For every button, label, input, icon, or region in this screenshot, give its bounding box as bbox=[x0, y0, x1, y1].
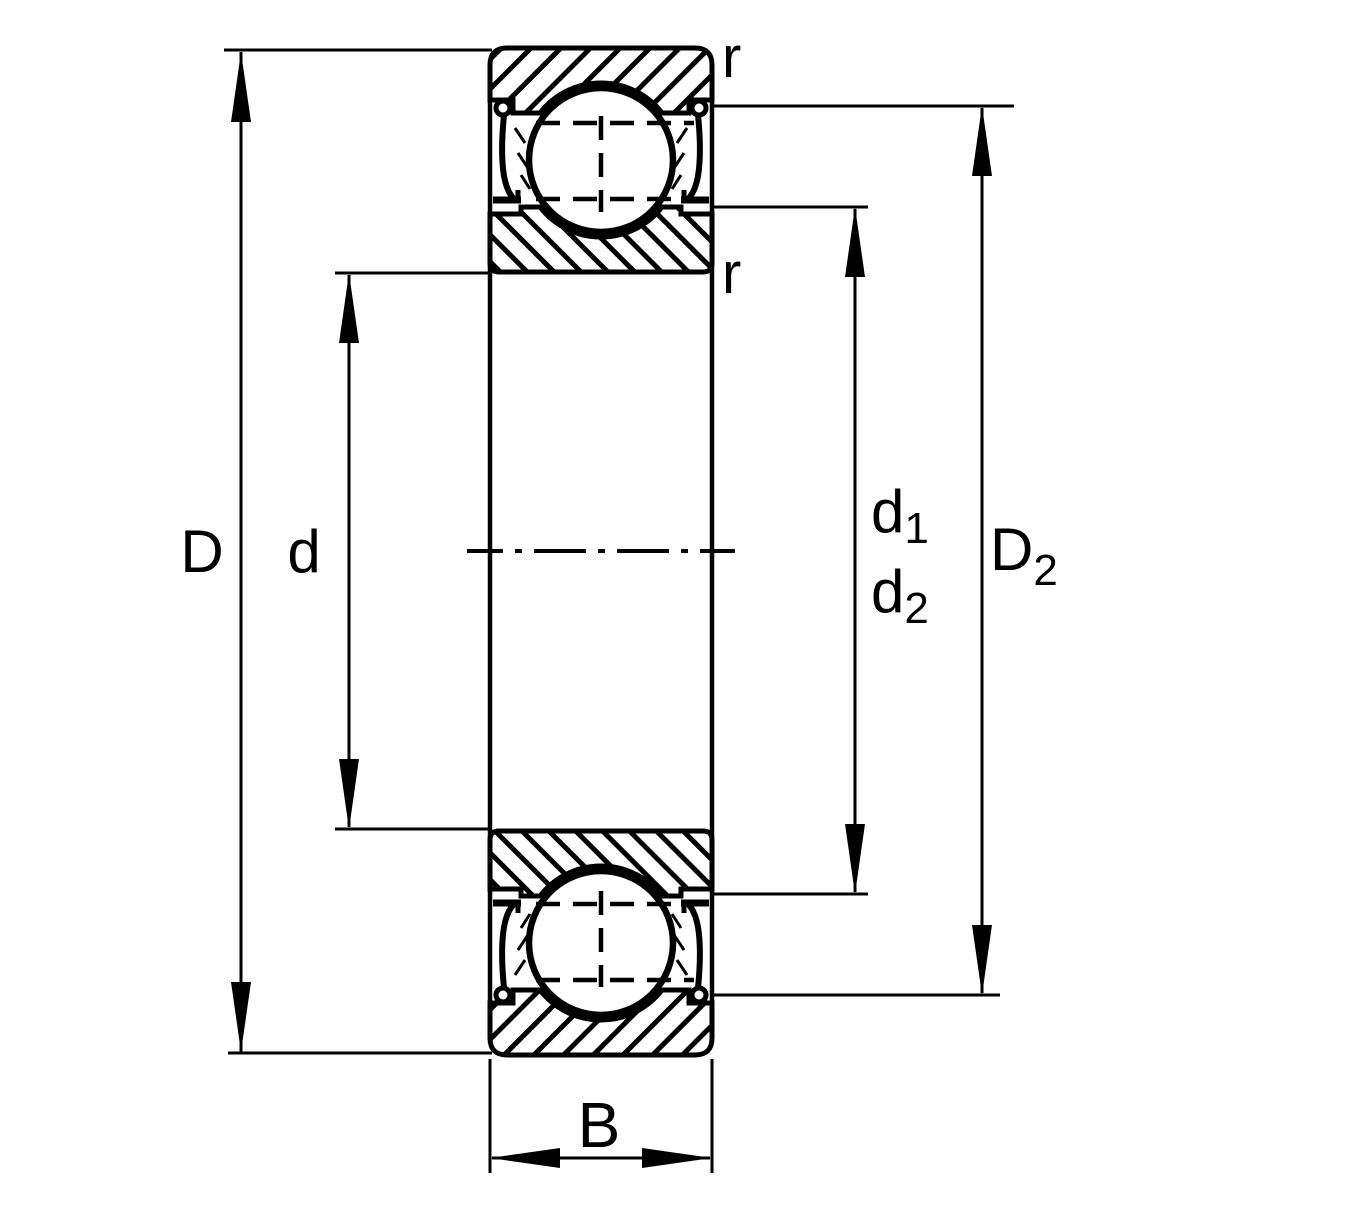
label-D2-sub: 2 bbox=[1033, 546, 1057, 595]
label-width-B: B bbox=[578, 1089, 621, 1161]
label-outer-diameter-D: D bbox=[180, 518, 223, 585]
label-d2-base: d bbox=[871, 558, 904, 625]
label-d1-base: d bbox=[871, 478, 904, 545]
label-chamfer-r-inner: r bbox=[722, 241, 741, 306]
label-d1-sub: 1 bbox=[904, 504, 928, 553]
label-bore-diameter-d: d bbox=[287, 518, 320, 585]
label-d2-sub: 2 bbox=[904, 584, 928, 633]
label-D2-base: D bbox=[990, 516, 1033, 583]
drawing-canvas: D d d1 d2 D2 B r r bbox=[0, 0, 1350, 1200]
label-chamfer-r-outer: r bbox=[722, 25, 741, 90]
bearing-cross-section-drawing: D d d1 d2 D2 B r r bbox=[0, 0, 1350, 1200]
